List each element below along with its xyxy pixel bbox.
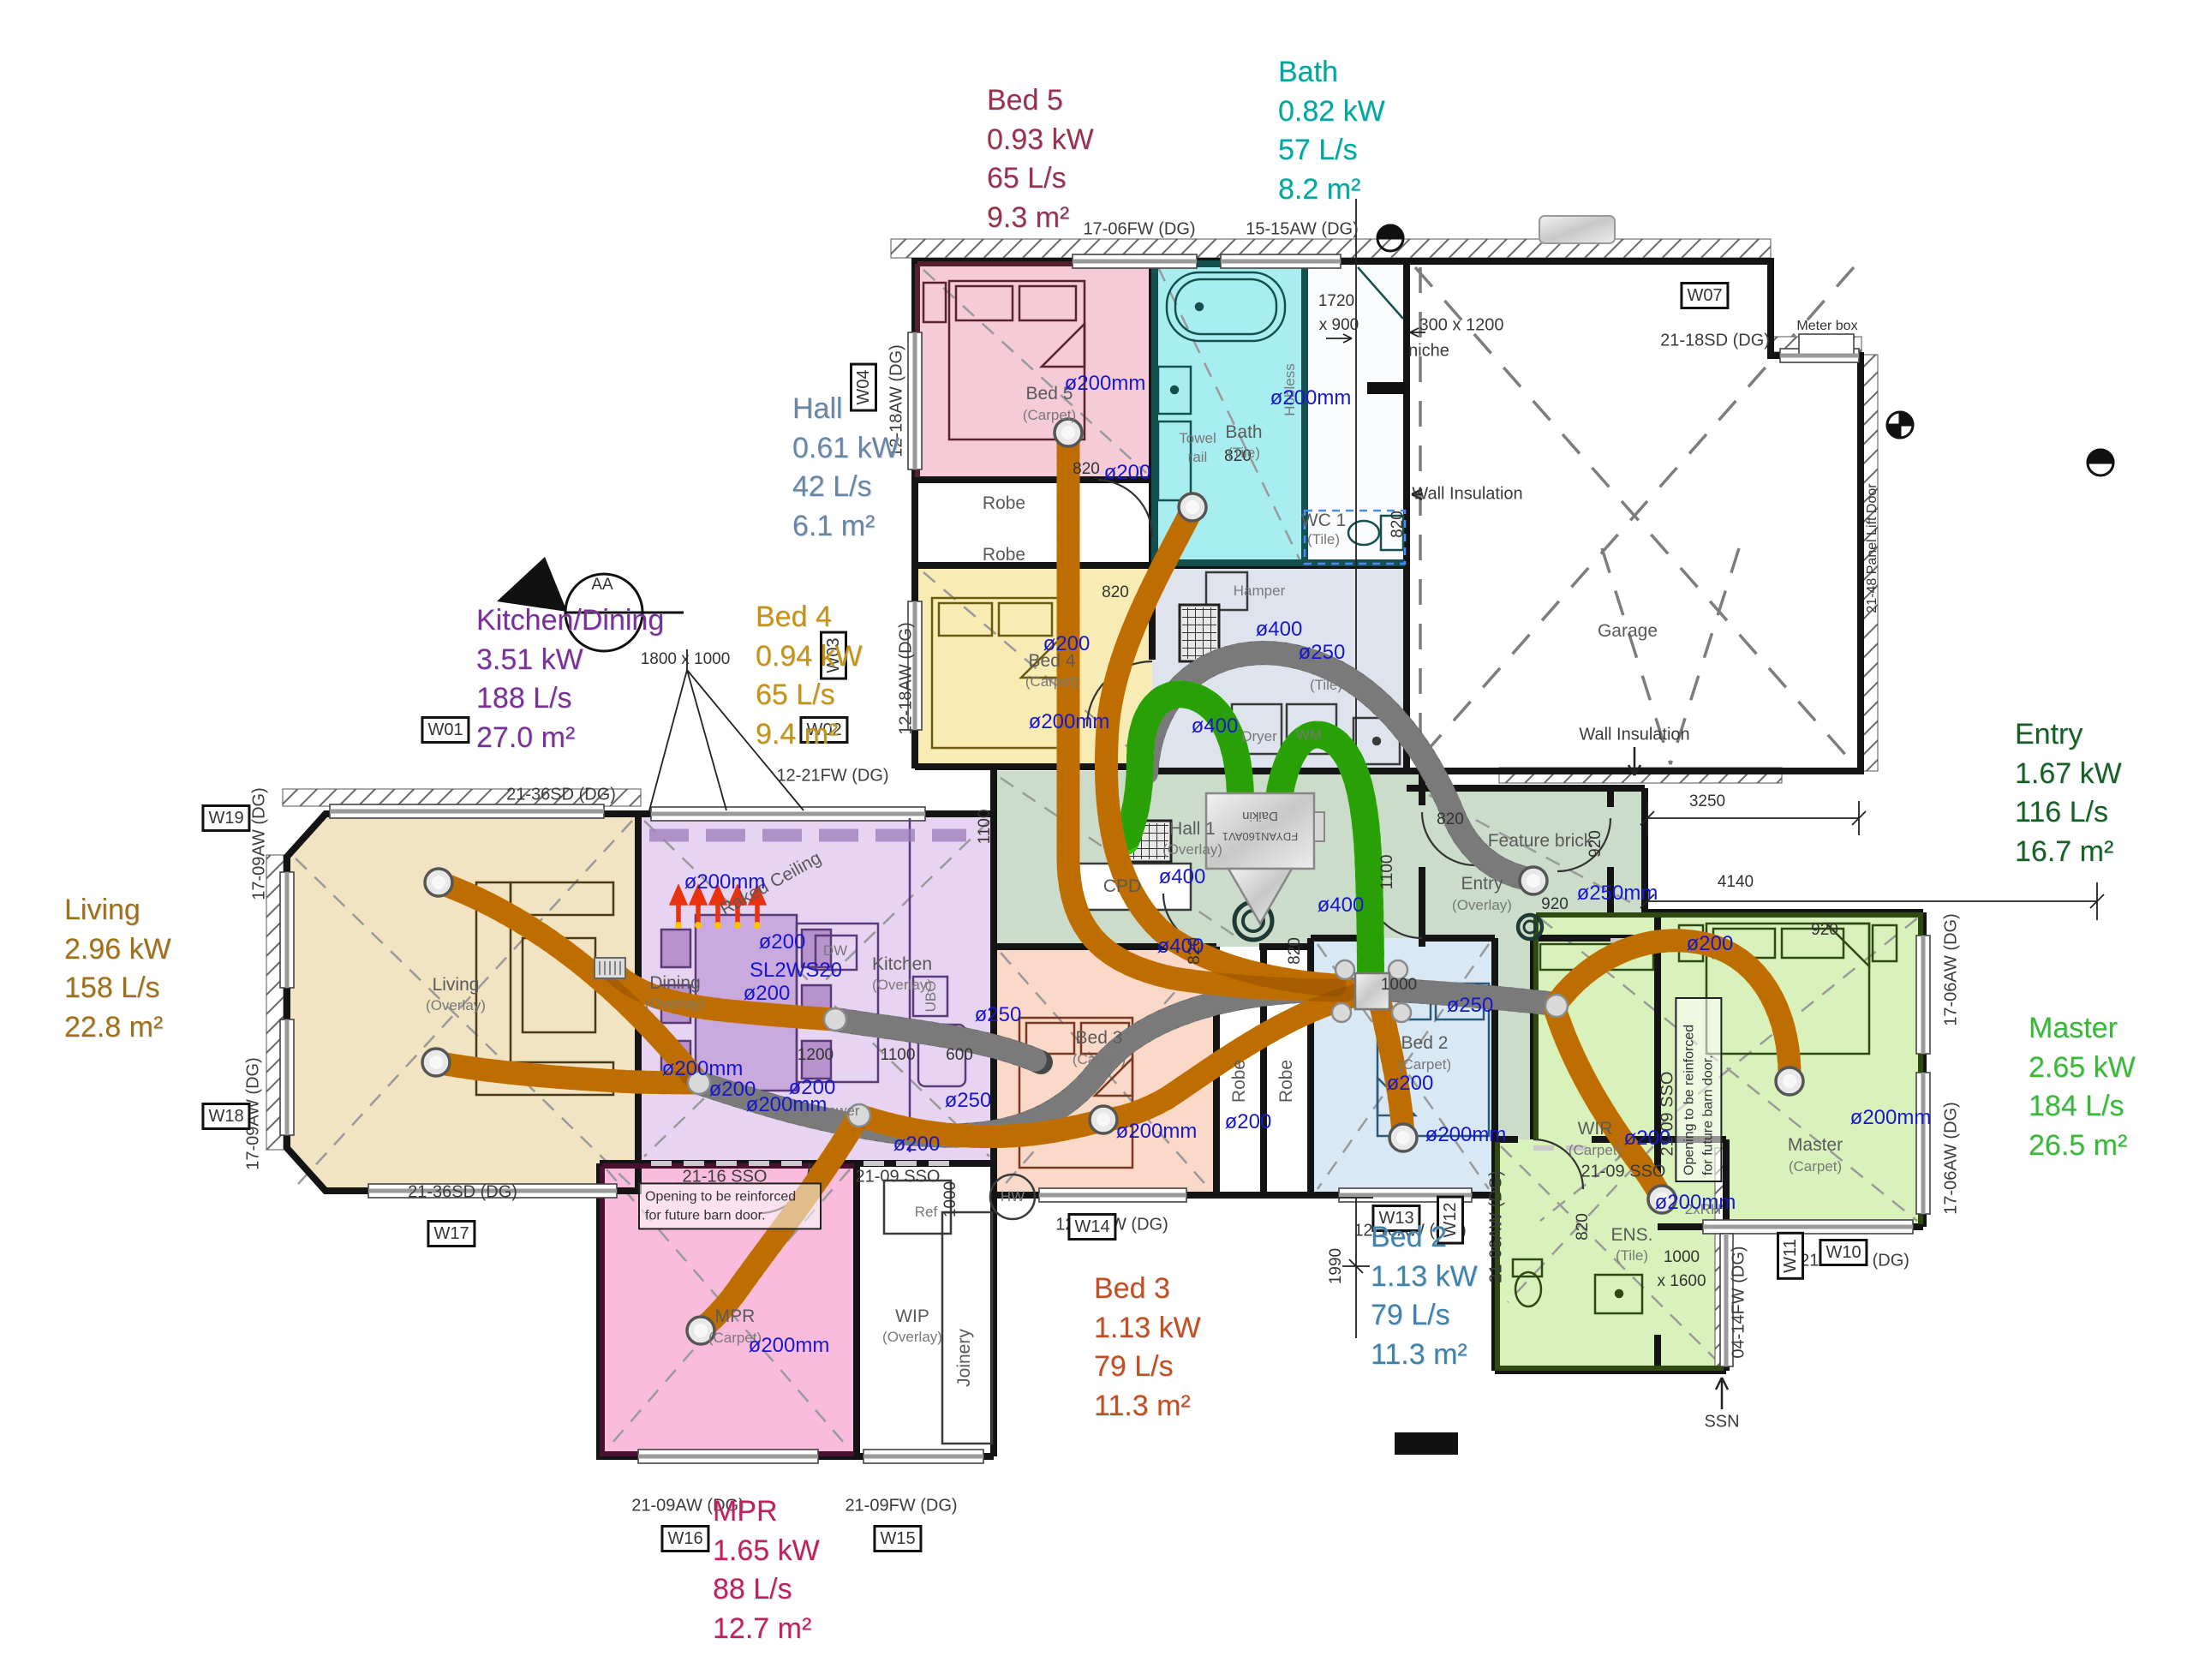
floor-plan-svg: Daikin FDYAN160AV1 (0, 0, 2193, 1680)
unit-brand-label: Daikin (1242, 809, 1278, 823)
section-marker-aa (497, 557, 684, 651)
unit-model-label: FDYAN160AV1 (1222, 830, 1298, 843)
floor-plan-page: Daikin FDYAN160AV1 17-06FW (DG)15-15AW (… (0, 0, 2193, 1680)
room-fills (287, 261, 1923, 1456)
